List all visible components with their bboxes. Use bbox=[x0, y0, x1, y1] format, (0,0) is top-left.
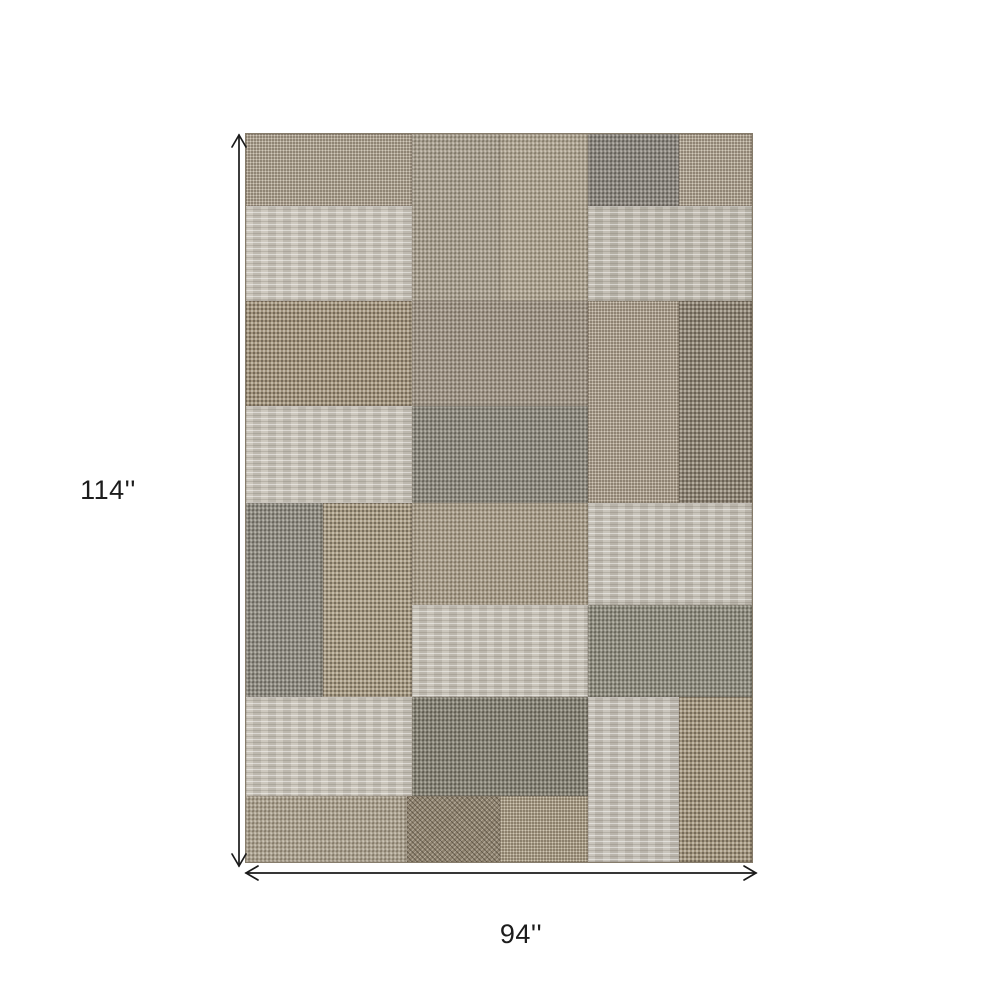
rug-patch bbox=[412, 605, 587, 697]
rug-patch bbox=[679, 134, 752, 206]
rug-patch bbox=[588, 206, 752, 301]
rug-patch bbox=[246, 406, 412, 504]
rug-patch bbox=[588, 697, 680, 862]
rug-patch bbox=[246, 697, 412, 796]
rug-patch bbox=[246, 134, 412, 206]
height-dimension-arrow bbox=[228, 128, 250, 874]
width-label: 94'' bbox=[471, 920, 571, 950]
width-dimension-arrow bbox=[240, 862, 762, 884]
rug-patch bbox=[246, 796, 407, 862]
rug-patch bbox=[588, 503, 752, 605]
rug-patch bbox=[246, 301, 412, 406]
rug-patch bbox=[323, 503, 413, 697]
rug-patch bbox=[412, 406, 587, 504]
rug-patch bbox=[412, 503, 587, 605]
rug-patch bbox=[679, 301, 752, 503]
rug-patch bbox=[500, 134, 588, 301]
rug-patch bbox=[412, 134, 500, 301]
rug-patch bbox=[246, 503, 323, 697]
rug-patch bbox=[588, 134, 680, 206]
rug-patch bbox=[588, 301, 680, 503]
height-label: 114'' bbox=[58, 476, 158, 506]
rug-patch bbox=[412, 301, 587, 406]
rug-patch bbox=[679, 697, 752, 862]
rug-image bbox=[245, 133, 753, 863]
rug-patch bbox=[500, 796, 588, 862]
rug-patch bbox=[407, 796, 500, 862]
product-dimension-figure: 114'' 94'' bbox=[0, 0, 1000, 1000]
rug-patch bbox=[412, 697, 587, 796]
rug-patch bbox=[588, 605, 752, 697]
rug-patch bbox=[246, 206, 412, 301]
